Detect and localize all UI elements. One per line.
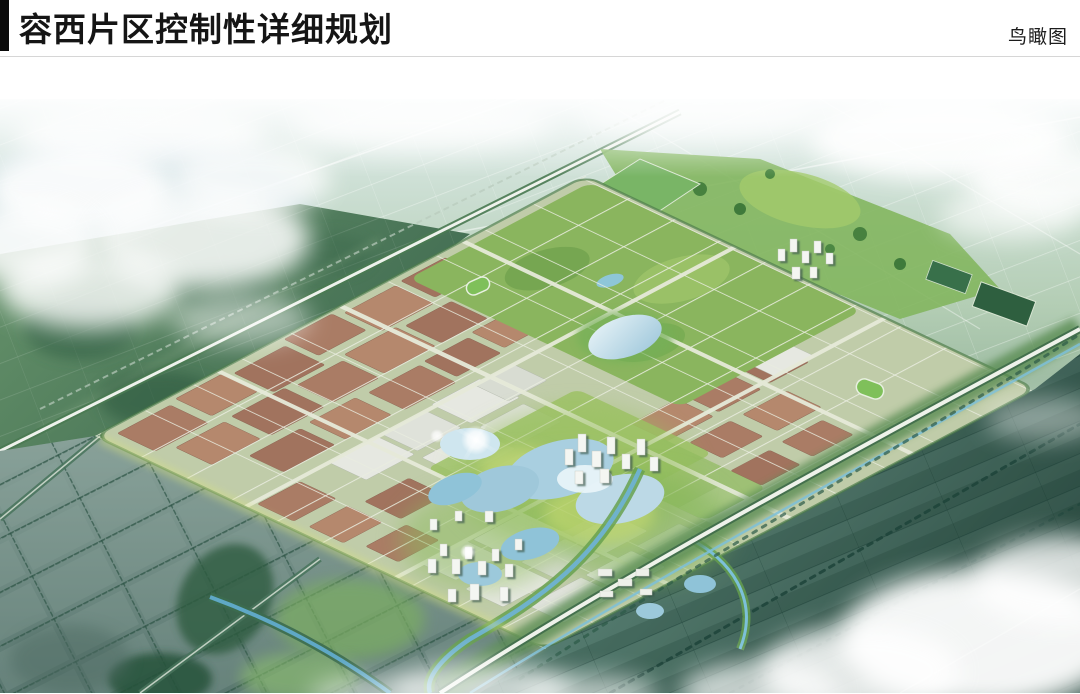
top-haze xyxy=(0,99,1080,177)
aerial-figure xyxy=(0,99,1080,693)
header: 容西片区控制性详细规划 鸟瞰图 xyxy=(0,0,1080,57)
aerial-rendering xyxy=(0,99,1080,693)
title-accent-bar xyxy=(0,0,9,51)
plan-page: 容西片区控制性详细规划 鸟瞰图 xyxy=(0,0,1080,694)
view-type-label: 鸟瞰图 xyxy=(1008,22,1068,49)
page-title: 容西片区控制性详细规划 xyxy=(19,3,393,51)
